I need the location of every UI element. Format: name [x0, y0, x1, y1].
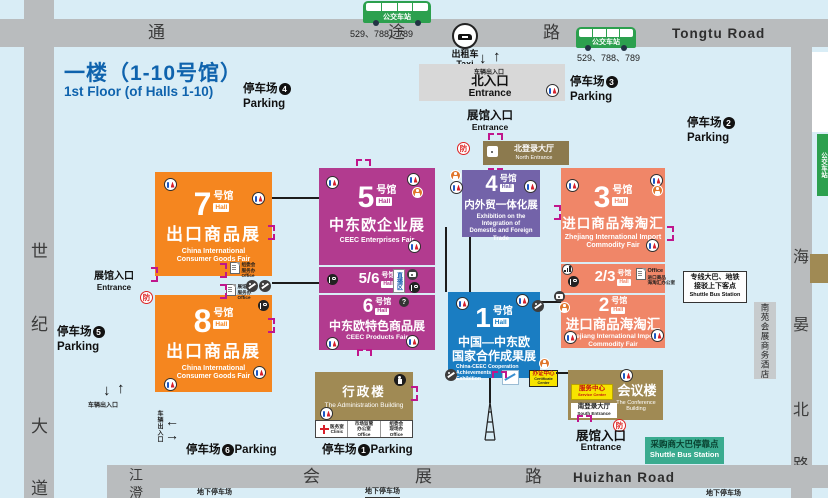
hall-8-title: 出口商品展	[155, 343, 272, 360]
gate-marker	[356, 159, 371, 168]
information-icon: ?	[399, 297, 409, 307]
hall-7-title: 出口商品展	[155, 226, 272, 243]
page-title: 一楼（1-10号馆）	[64, 57, 242, 87]
shuttle-bus-station-box: 专线大巴、地铁 接驳上下客点 Shuttle Bus Station	[683, 271, 747, 303]
office-label: Office 进口商品 海淘汇办公室	[636, 268, 675, 286]
underground-parking-label: 地下停车场	[706, 488, 741, 498]
parking-3: 停车场3 Parking	[570, 75, 618, 105]
vehicle-gate-label: 车辆出入口	[155, 410, 164, 443]
escalator-icon	[259, 280, 271, 292]
hall-4-title: 内外贸一体化展	[462, 200, 540, 211]
taxi-icon	[452, 23, 478, 49]
restroom-icon	[320, 407, 333, 420]
bus-windows	[579, 29, 633, 37]
page-title-en: 1st Floor (of Halls 1-10)	[64, 84, 213, 99]
arrow-up-icon: ↑	[117, 381, 125, 396]
road-label: 展	[415, 468, 432, 485]
road-label: 纪	[31, 316, 48, 333]
office-label: 组委会 服务办 Office	[230, 262, 255, 279]
restaurant-icon	[258, 300, 269, 311]
underground-parking-label: 地下停车场	[197, 487, 232, 498]
road-label: 路	[525, 468, 542, 485]
hall-1-title: 中国—中东欧	[448, 336, 540, 348]
service-person-icon	[450, 170, 461, 181]
parking-5: 停车场5 Parking	[57, 325, 105, 355]
escalator-icon	[445, 369, 457, 381]
parking-6: 停车场6Parking	[186, 443, 277, 458]
document-icon	[230, 262, 240, 274]
gate-marker	[266, 318, 275, 333]
restroom-icon	[524, 180, 537, 193]
livestream-zone-label: 直播区	[393, 269, 405, 293]
bus-station-icon: 公交车站	[363, 1, 431, 23]
road-label: 道	[31, 480, 48, 497]
hall-2-number: 2 号馆Hall	[561, 297, 665, 314]
service-person-icon	[539, 358, 550, 369]
service-person-icon	[652, 185, 663, 196]
restroom-icon	[407, 173, 420, 186]
bus-station-marker: 公交车站	[817, 134, 828, 196]
vehicle-gate-label: 车辆出入口	[88, 400, 118, 409]
office-label: 组委会 现场办 Office	[381, 421, 412, 437]
arrow-down-icon: ↓	[103, 383, 111, 398]
conference-building: 服务中心 Service Center 南登录大厅 South Entrance…	[568, 370, 663, 420]
restroom-icon	[326, 337, 339, 350]
certificate-center: 办证中心 Certificate Center	[529, 370, 558, 387]
office-label: 市场监管 办公室 Office	[348, 421, 380, 437]
underground-parking-label: 地下停车场	[365, 486, 400, 498]
restaurant-icon	[568, 276, 579, 287]
bus-windows	[366, 3, 428, 11]
wifi-icon	[562, 264, 573, 275]
restroom-icon	[326, 176, 339, 189]
road-label: 澄	[129, 486, 143, 498]
hall-4-subtitle: Exhibition on the Integration ofDomestic…	[462, 214, 540, 243]
restroom-icon	[164, 378, 177, 391]
restroom-icon	[646, 239, 659, 252]
hall-entrance-north: 展馆入口 Entrance	[440, 110, 540, 133]
restaurant-icon	[409, 282, 420, 293]
parking-4: 停车场4 Parking	[243, 82, 291, 112]
arrow-up-icon: ↑	[493, 49, 501, 64]
gate-marker	[409, 386, 418, 401]
restaurant-icon	[327, 274, 338, 285]
restroom-icon	[620, 369, 633, 382]
restroom-icon	[516, 294, 529, 307]
hall-entrance-west: 展馆入口 Entrance	[84, 271, 144, 292]
gate-marker	[492, 371, 507, 380]
road-label: 会	[303, 468, 320, 485]
parking-2: 停车场2 Parking	[687, 116, 735, 146]
hall-entrance-south: 展馆入口 Entrance	[551, 429, 651, 454]
road-label: 晏	[793, 318, 809, 334]
tower-icon	[480, 400, 500, 442]
hall-6-title: 中东欧特色商品展	[319, 320, 435, 332]
road-label: 江	[129, 468, 143, 482]
gate-marker	[577, 415, 592, 424]
road-label: 大	[31, 418, 48, 435]
arrow-down-icon: ↓	[479, 51, 487, 66]
corridor-line	[556, 372, 568, 374]
road-label-en: Tongtu Road	[672, 26, 765, 41]
north-registration-hall: 北登录大厅 North Entrance	[483, 141, 569, 165]
restroom-icon	[252, 192, 265, 205]
camera-icon	[407, 269, 418, 280]
restroom-icon	[406, 335, 419, 348]
arrow-right-icon: →	[165, 428, 179, 442]
document-icon	[636, 268, 646, 280]
arrow-left-icon: ←	[165, 414, 179, 428]
exhibition-floor-map: 世 纪 大 道 海 晏 北 路 通 途 路 Tongtu Road 529、78…	[0, 0, 828, 498]
red-cross-icon	[320, 425, 329, 434]
bus-routes: 529、788、789	[350, 27, 413, 40]
corridor-line	[469, 237, 471, 292]
hall-6-number: 6 号馆Hall	[319, 298, 435, 315]
road-label: 路	[543, 24, 560, 41]
hall-3-title: 进口商品海淘汇	[561, 217, 665, 231]
north-entrance-label: 北入口 Entrance	[440, 74, 540, 100]
hotel-label: 南苑会展商务酒店	[754, 302, 776, 379]
escalator-icon	[532, 300, 544, 312]
restroom-icon	[456, 297, 469, 310]
restroom-icon	[651, 329, 664, 342]
road-label: 通	[148, 24, 165, 41]
restroom-icon	[564, 331, 577, 344]
buyer-shuttle-station-box: 采购商大巴停靠点 Shuttle Bus Station	[645, 437, 724, 464]
gate-marker	[218, 263, 227, 278]
road-huizhan: 会 展 路 Huizhan Road	[107, 465, 828, 488]
road-tongtu: 通 途 路 Tongtu Road 529、788、789	[0, 19, 828, 47]
corridor-line	[272, 197, 319, 199]
restroom-icon	[253, 366, 266, 379]
bus-station-icon: 公交车站	[576, 27, 636, 48]
hall-2-title: 进口商品海淘汇	[561, 318, 665, 332]
hall-5-title: 中东欧企业展	[319, 218, 435, 233]
road-branch-jiangcheng: 江 澄	[107, 465, 160, 498]
service-person-icon	[412, 187, 423, 198]
road-shiji-avenue: 世 纪 大 道	[24, 0, 54, 498]
service-person-icon	[559, 302, 570, 313]
escalator-icon	[246, 280, 258, 292]
camera-icon	[487, 146, 498, 157]
restroom-icon	[546, 84, 559, 97]
road-haiyan-north: 海 晏 北 路	[791, 40, 812, 498]
restroom-icon	[450, 181, 463, 194]
road-label: 北	[793, 403, 809, 419]
document-icon	[226, 284, 236, 296]
camera-icon	[554, 291, 565, 302]
parking-1: 停车场1Parking	[322, 443, 413, 458]
admin-services-strip: 医务室 Clinic 市场监管 办公室 Office 组委会 现场办 Offic…	[315, 420, 413, 438]
gate-marker	[149, 267, 158, 282]
road-label-en: Huizhan Road	[573, 470, 675, 485]
restroom-icon	[566, 179, 579, 192]
gate-marker	[552, 205, 561, 220]
corridor-line	[445, 227, 447, 292]
corridor-line	[272, 282, 319, 284]
hall-1-title2: 国家合作成果展	[448, 350, 540, 362]
bus-routes: 529、788、789	[577, 51, 640, 64]
road-label: 世	[31, 243, 48, 260]
building-cutoff	[812, 52, 828, 132]
service-center: 服务中心 Service Center	[571, 384, 613, 400]
road-label: 海	[793, 250, 809, 266]
hall-2: 2 号馆Hall 进口商品海淘汇 Zhejiang International …	[561, 295, 665, 348]
gate-marker	[357, 349, 372, 358]
gate-marker	[665, 226, 674, 241]
fire-control-icon: 防	[457, 142, 470, 155]
gate-marker	[266, 225, 275, 240]
gate-marker	[218, 284, 227, 299]
fire-control-icon: 防	[140, 291, 153, 304]
hall-8-number: 8 号馆Hall	[155, 307, 272, 336]
building-cutoff-khaki	[810, 254, 828, 283]
restroom-icon	[164, 178, 177, 191]
restroom-icon	[408, 240, 421, 253]
clinic-label: 医务室 Clinic	[316, 421, 348, 437]
person-icon	[394, 374, 406, 386]
